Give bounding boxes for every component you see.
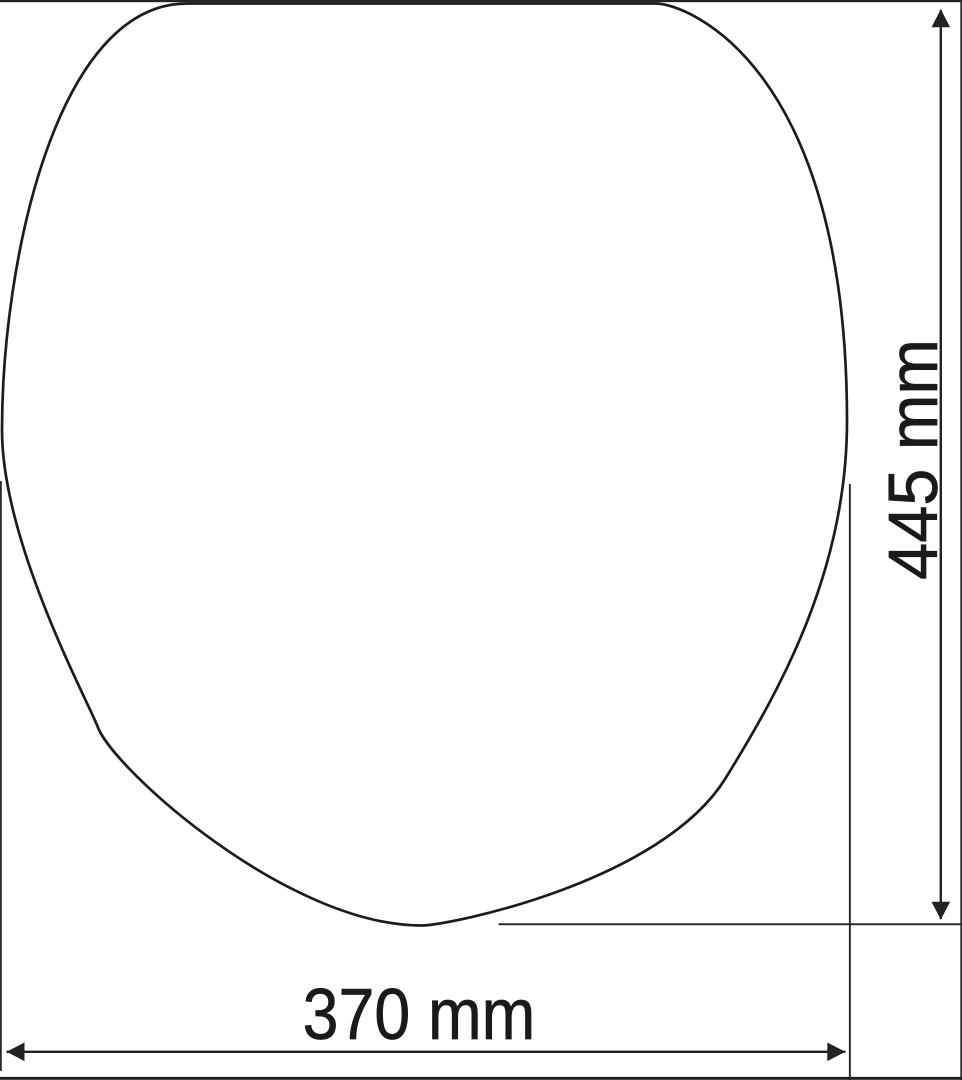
svg-text:445 mm: 445 mm xyxy=(875,339,953,580)
svg-text:370 mm: 370 mm xyxy=(303,973,536,1055)
